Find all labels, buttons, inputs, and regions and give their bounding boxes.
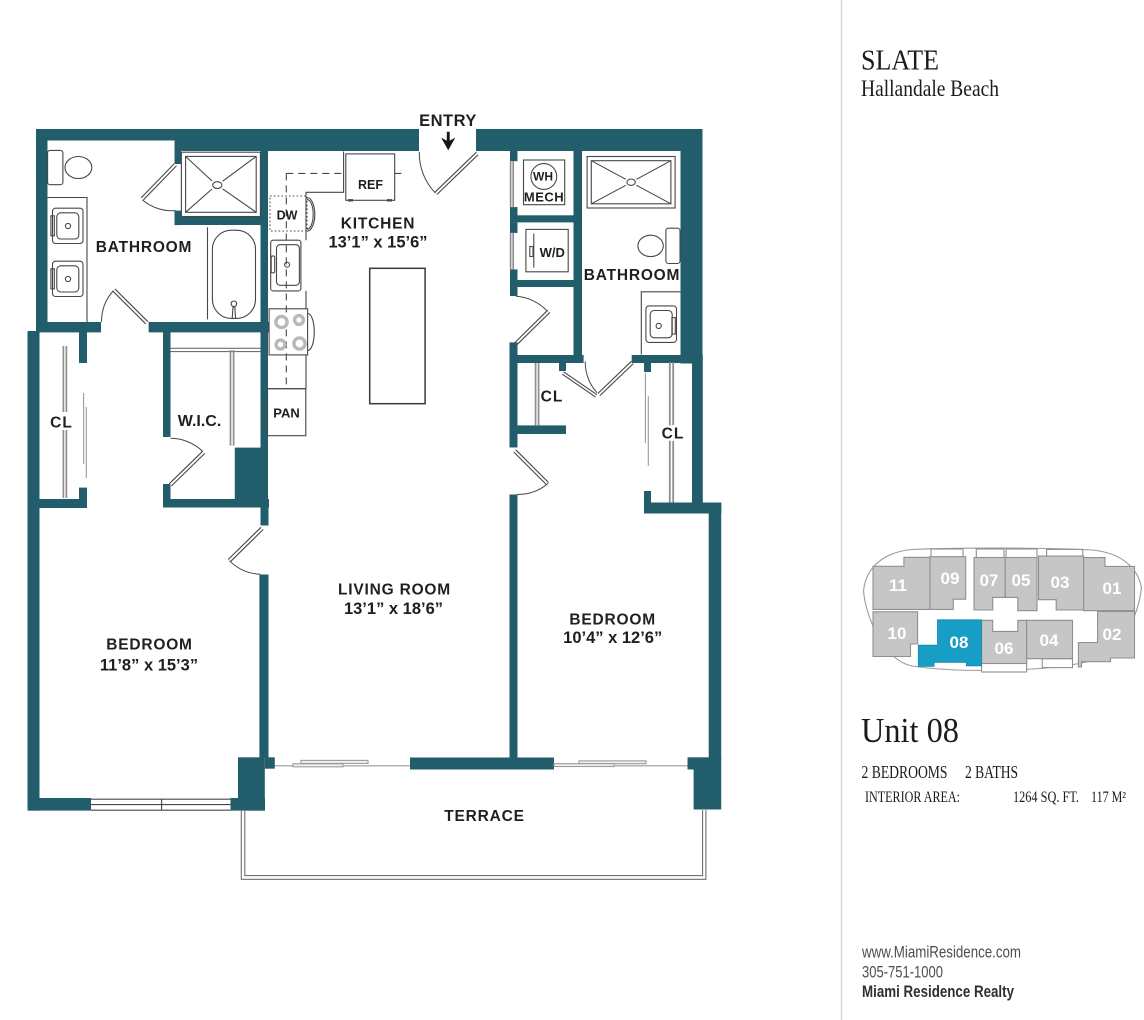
svg-text:13’1” x 18’6”: 13’1” x 18’6” [344, 600, 443, 618]
svg-text:05: 05 [1012, 571, 1031, 590]
svg-text:DW: DW [277, 209, 298, 223]
svg-text:03: 03 [1051, 573, 1070, 592]
svg-text:11’8” x 15’3”: 11’8” x 15’3” [100, 657, 198, 675]
svg-text:BEDROOM: BEDROOM [569, 612, 656, 629]
svg-text:02: 02 [1103, 625, 1122, 644]
svg-text:Hallandale Beach: Hallandale Beach [861, 76, 999, 101]
svg-text:REF: REF [358, 178, 383, 192]
svg-text:07: 07 [980, 571, 999, 590]
svg-text:WH: WH [533, 170, 553, 184]
svg-text:10’4” x 12’6”: 10’4” x 12’6” [563, 629, 662, 647]
svg-text:MECH: MECH [524, 190, 564, 205]
svg-text:09: 09 [941, 569, 960, 588]
svg-text:INTERIOR AREA:: INTERIOR AREA: [865, 789, 960, 806]
svg-text:CL: CL [541, 389, 564, 406]
svg-text:BEDROOM: BEDROOM [106, 637, 193, 654]
svg-text:www.MiamiResidence.com: www.MiamiResidence.com [861, 944, 1021, 962]
svg-text:13’1” x 15’6”: 13’1” x 15’6” [328, 234, 427, 252]
svg-text:Unit 08: Unit 08 [861, 711, 959, 750]
svg-text:117 M²: 117 M² [1091, 789, 1126, 806]
svg-text:CL: CL [50, 414, 73, 431]
svg-text:1264 SQ. FT.: 1264 SQ. FT. [1013, 789, 1079, 806]
svg-text:LIVING ROOM: LIVING ROOM [338, 582, 451, 599]
svg-text:10: 10 [888, 624, 907, 643]
svg-text:2 BATHS: 2 BATHS [965, 762, 1018, 782]
svg-text:W/D: W/D [540, 245, 565, 260]
svg-text:06: 06 [995, 639, 1014, 658]
svg-text:W.I.C.: W.I.C. [178, 413, 222, 430]
svg-text:SLATE: SLATE [861, 46, 939, 77]
svg-text:ENTRY: ENTRY [419, 112, 477, 130]
svg-text:BATHROOM: BATHROOM [96, 239, 193, 256]
svg-text:BATHROOM: BATHROOM [584, 267, 681, 284]
svg-text:PAN: PAN [273, 406, 299, 421]
svg-text:2 BEDROOMS: 2 BEDROOMS [862, 762, 948, 782]
svg-text:TERRACE: TERRACE [444, 808, 525, 825]
svg-text:Miami Residence Realty: Miami Residence Realty [862, 983, 1015, 1001]
svg-text:CL: CL [662, 425, 685, 442]
svg-text:08: 08 [950, 633, 969, 652]
svg-text:04: 04 [1040, 631, 1059, 650]
svg-text:11: 11 [889, 576, 907, 595]
svg-text:KITCHEN: KITCHEN [341, 216, 416, 233]
svg-text:01: 01 [1103, 579, 1122, 598]
svg-text:305-751-1000: 305-751-1000 [862, 964, 943, 982]
